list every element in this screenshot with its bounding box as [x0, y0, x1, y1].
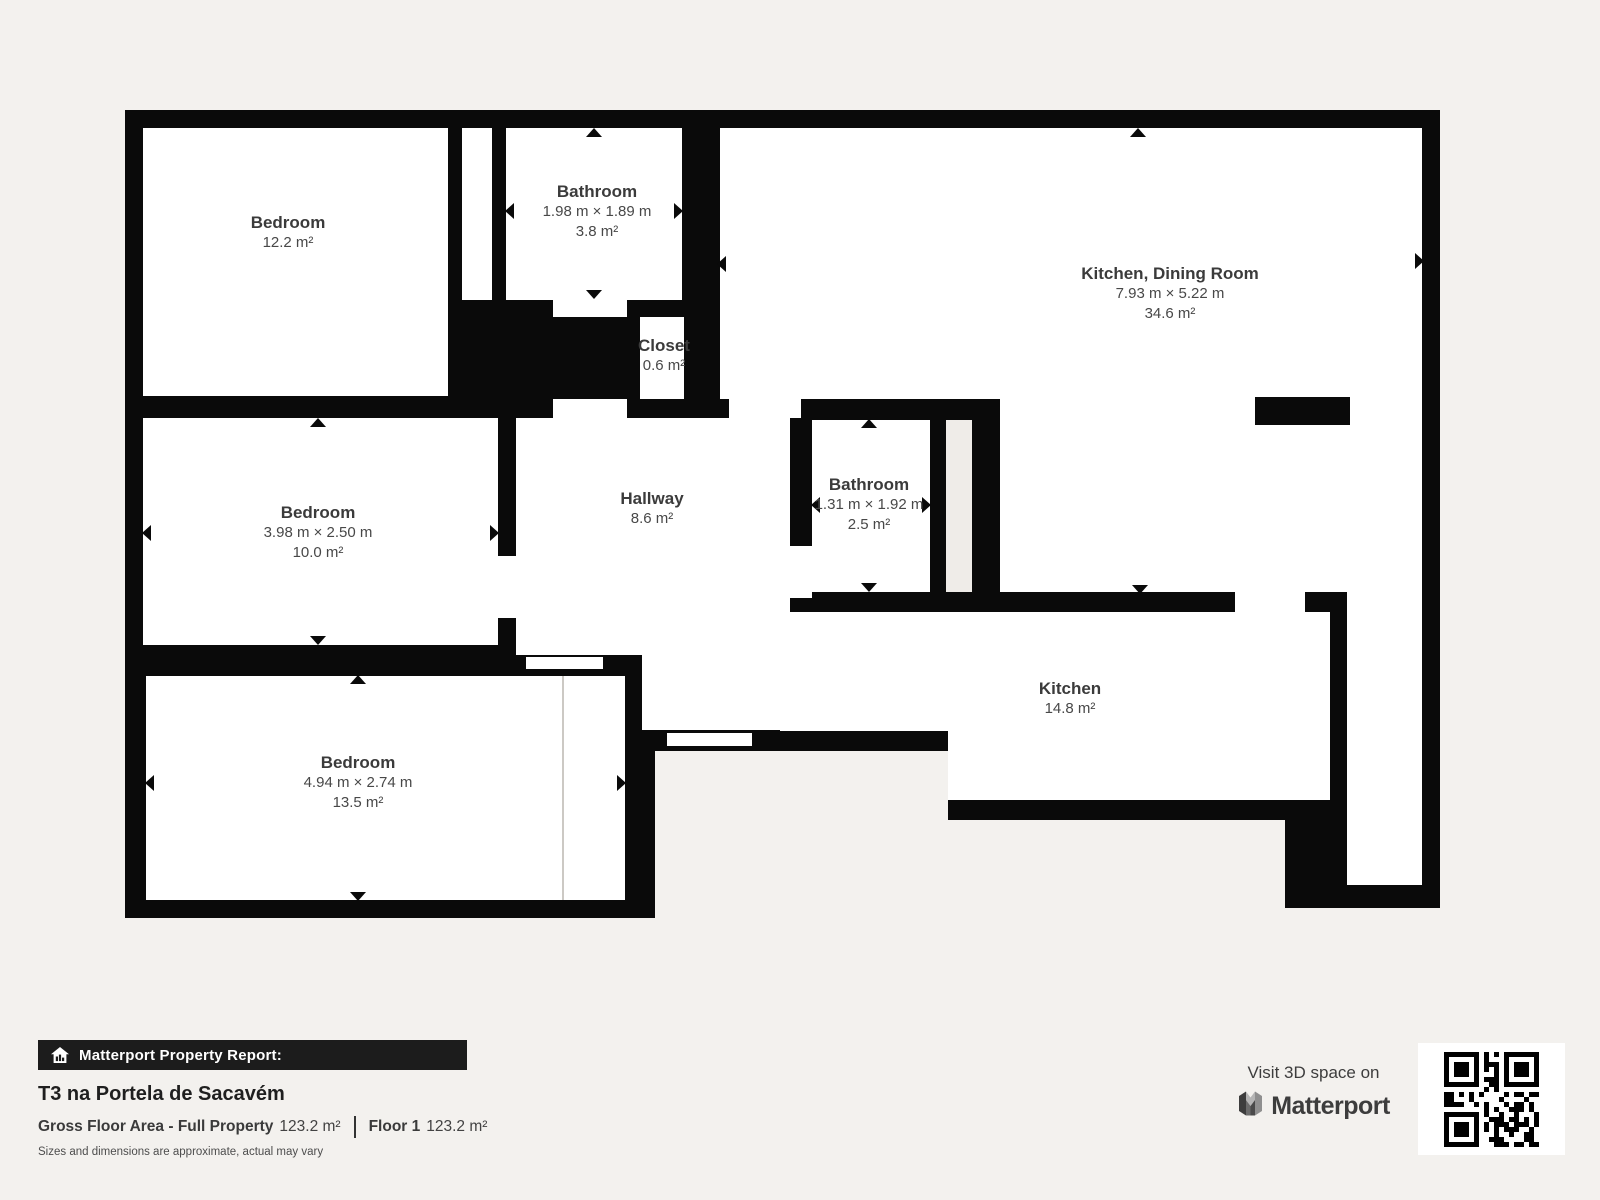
door-gap	[553, 399, 627, 418]
door-gap-entrance	[667, 733, 752, 746]
qr-code	[1418, 1043, 1565, 1155]
room-label-bedroom-top-left: Bedroom 12.2 m²	[251, 212, 326, 253]
report-banner: Matterport Property Report:	[38, 1040, 467, 1070]
room-label-bathroom-small: Bathroom 1.31 m × 1.92 m 2.5 m²	[815, 474, 924, 535]
room-label-closet: Closet 0.6 m²	[638, 335, 690, 376]
room-label-kitchen-dining: Kitchen, Dining Room 7.93 m × 5.22 m 34.…	[1081, 263, 1259, 324]
door-gap	[553, 300, 627, 317]
room-label-kitchen: Kitchen 14.8 m²	[1039, 678, 1101, 719]
kitchen-island	[1255, 397, 1350, 425]
floor-value: 123.2 m²	[426, 1118, 487, 1136]
matterport-floorplan-page: Bedroom 12.2 m² Bathroom 1.98 m × 1.89 m…	[0, 0, 1600, 1200]
floor-label: Floor 1	[369, 1118, 421, 1136]
door-gap	[498, 556, 516, 618]
property-title: T3 na Portela de Sacavém	[38, 1083, 558, 1106]
room-label-bedroom-middle: Bedroom 3.98 m × 2.50 m 10.0 m²	[264, 502, 373, 563]
area-summary: Gross Floor Area - Full Property 123.2 m…	[38, 1116, 558, 1138]
door-gap	[526, 657, 603, 669]
door-gap	[790, 546, 812, 598]
door-gap	[729, 399, 801, 418]
floor-right-column	[1347, 592, 1422, 885]
gross-floor-area-label: Gross Floor Area - Full Property	[38, 1118, 273, 1136]
room-label-hallway: Hallway 8.6 m²	[620, 488, 683, 529]
house-icon	[51, 1047, 69, 1064]
room-label-bathroom-top: Bathroom 1.98 m × 1.89 m 3.8 m²	[543, 181, 652, 242]
matterport-logo-icon	[1237, 1090, 1264, 1122]
divider	[354, 1116, 356, 1138]
disclaimer-text: Sizes and dimensions are approximate, ac…	[38, 1146, 558, 1158]
floor-plan	[0, 0, 1600, 1200]
shaft	[946, 420, 972, 592]
floor-bedroom-top-left	[143, 128, 448, 396]
report-banner-label: Matterport Property Report:	[79, 1047, 282, 1064]
visit-3d-cta: Visit 3D space on Matterport	[1216, 1062, 1411, 1122]
property-report: Matterport Property Report: T3 na Portel…	[38, 1040, 558, 1158]
door-gap	[1235, 592, 1305, 612]
gross-floor-area-value: 123.2 m²	[279, 1118, 340, 1136]
floor-niche	[462, 128, 492, 300]
room-label-bedroom-bottom: Bedroom 4.94 m × 2.74 m 13.5 m²	[304, 752, 413, 813]
matterport-wordmark: Matterport	[1271, 1092, 1390, 1121]
visit-3d-text: Visit 3D space on	[1216, 1062, 1411, 1084]
matterport-brand: Matterport	[1216, 1090, 1411, 1122]
